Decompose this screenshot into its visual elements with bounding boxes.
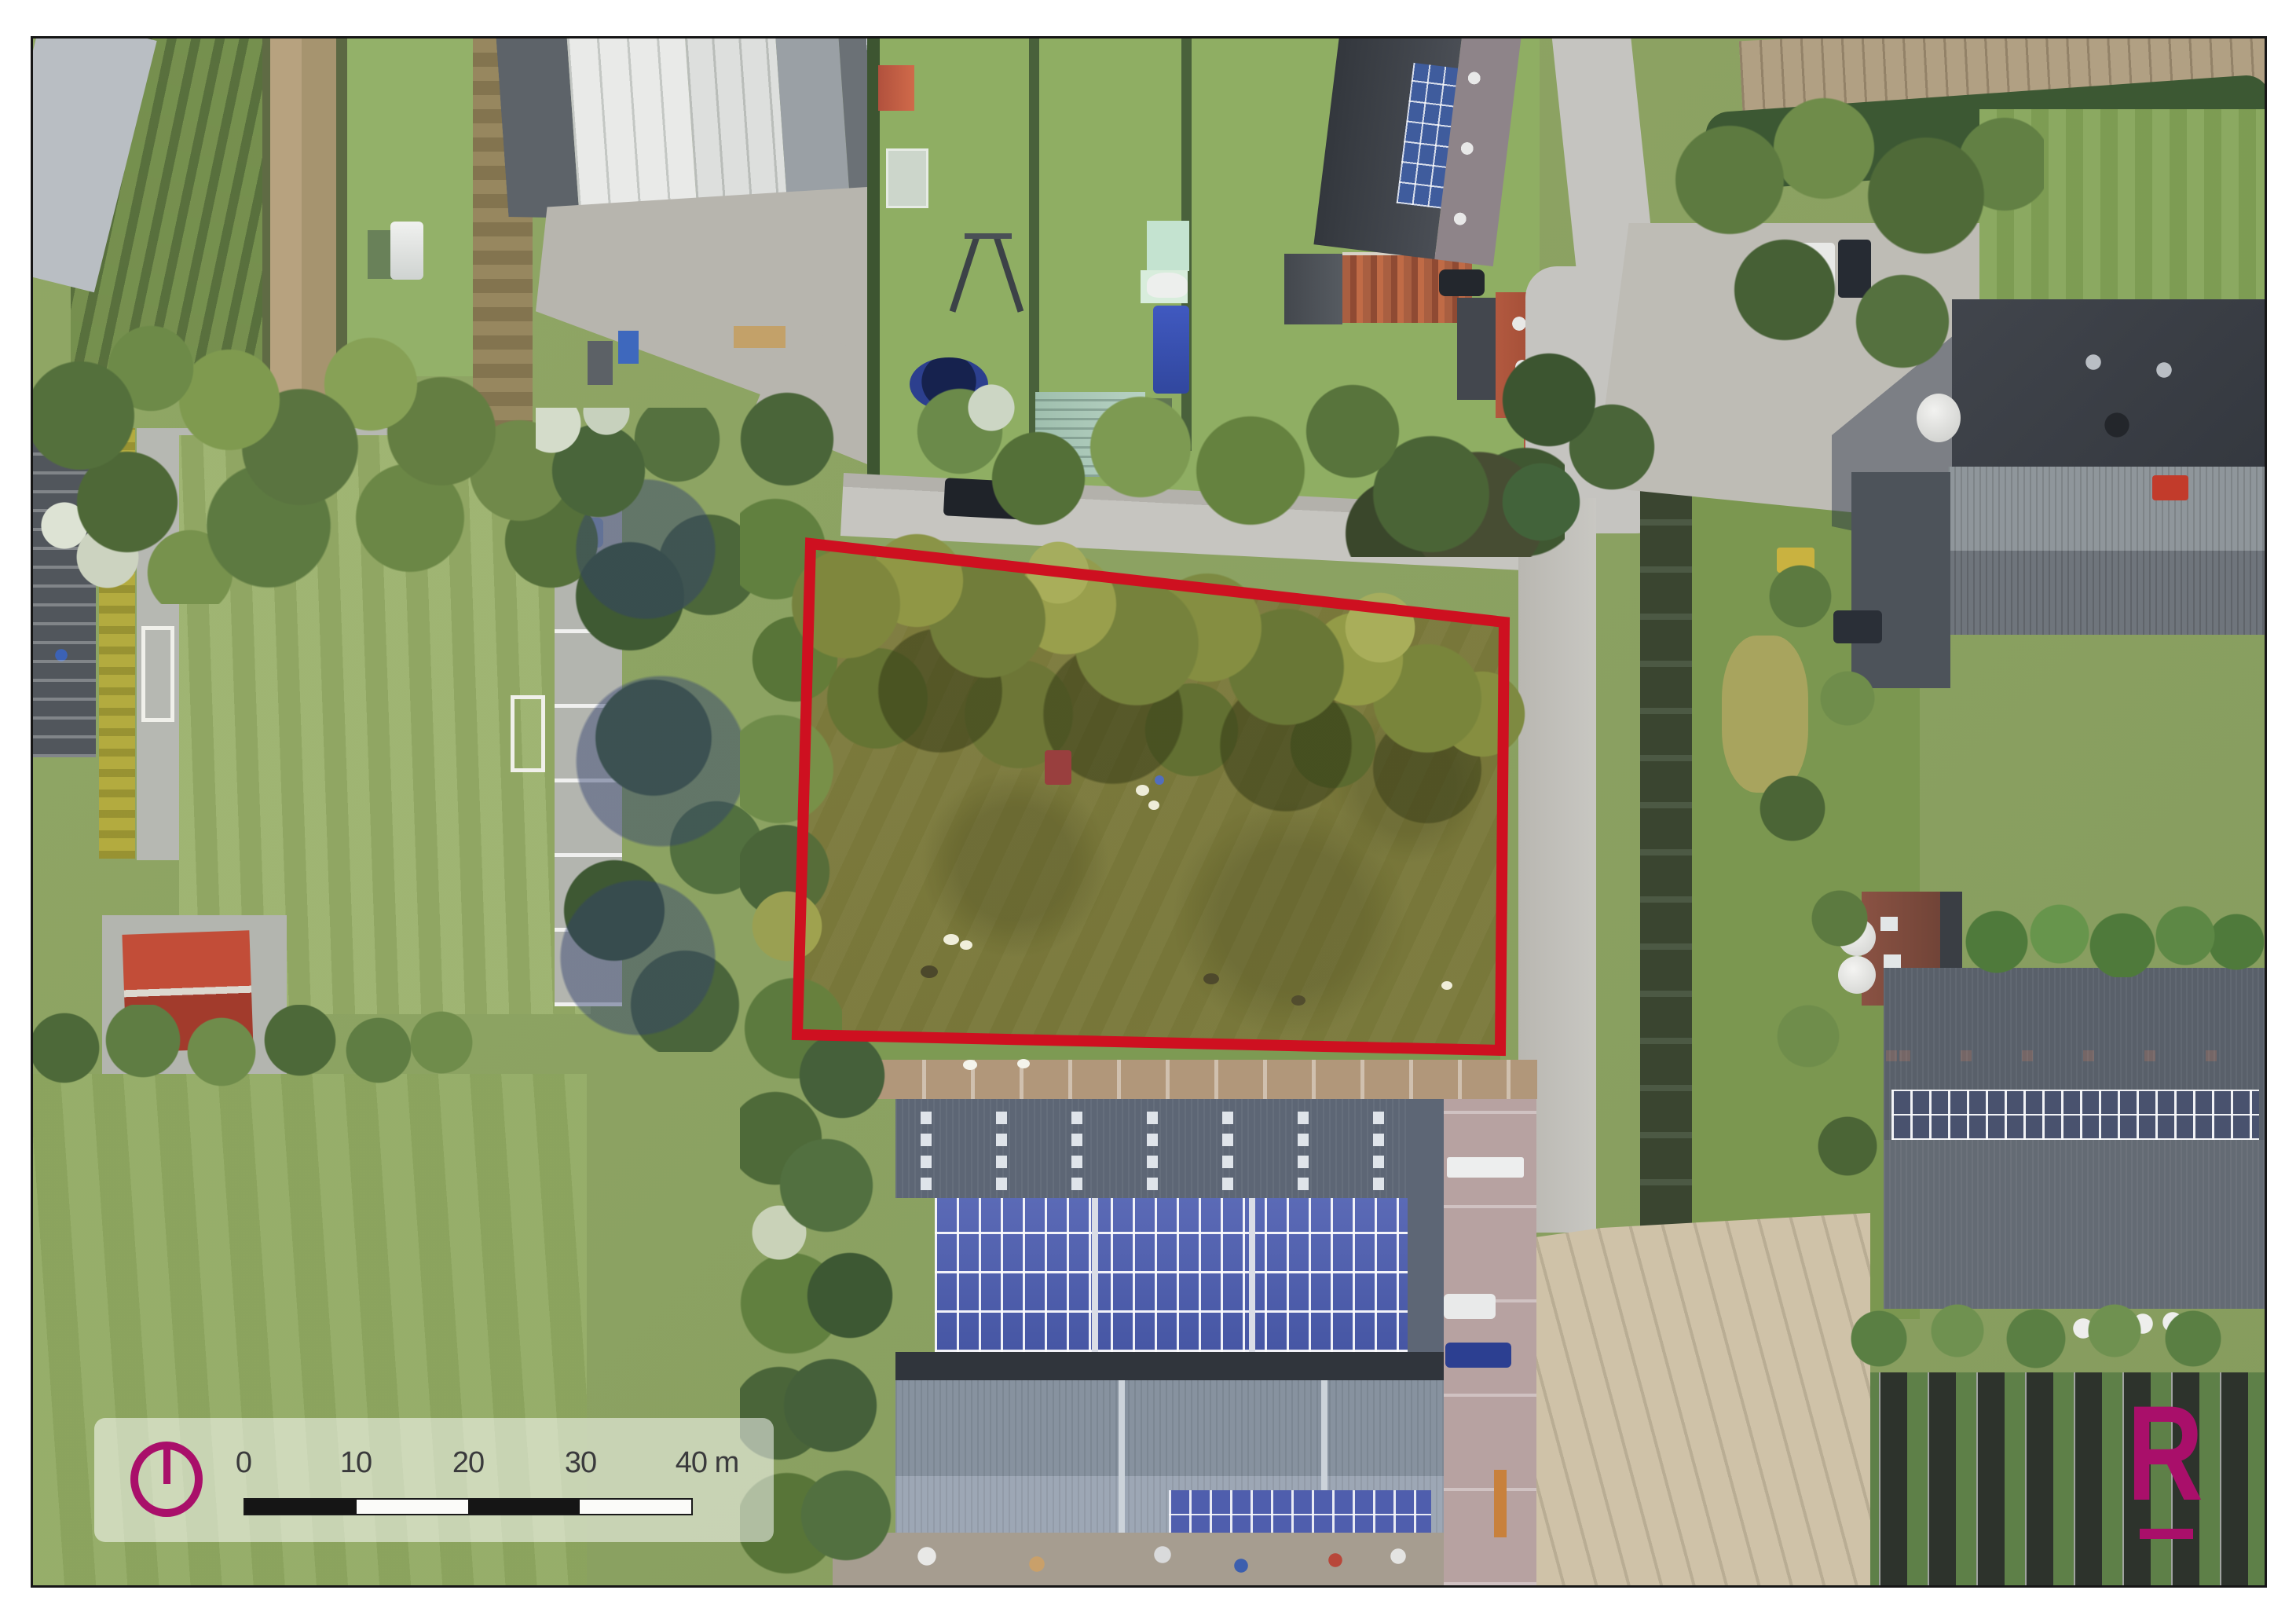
scalebar-tick: 0 bbox=[236, 1446, 251, 1480]
map-legend-panel: 0 10 20 30 40 m bbox=[94, 1418, 774, 1542]
scalebar-tick: 10 bbox=[340, 1446, 372, 1480]
scalebar bbox=[244, 1498, 693, 1515]
aerial-photo bbox=[31, 36, 2267, 1588]
parcel-outline bbox=[33, 38, 2267, 1588]
letter-r-logo: R bbox=[2127, 1398, 2201, 1532]
north-arrow-needle bbox=[163, 1445, 170, 1484]
scalebar-tick: 40 m bbox=[676, 1446, 738, 1480]
logo-underscore bbox=[2140, 1529, 2193, 1539]
scalebar-tick: 20 bbox=[452, 1446, 484, 1480]
scalebar-tick: 30 bbox=[565, 1446, 596, 1480]
map-page: 0 10 20 30 40 m R bbox=[0, 0, 2296, 1623]
